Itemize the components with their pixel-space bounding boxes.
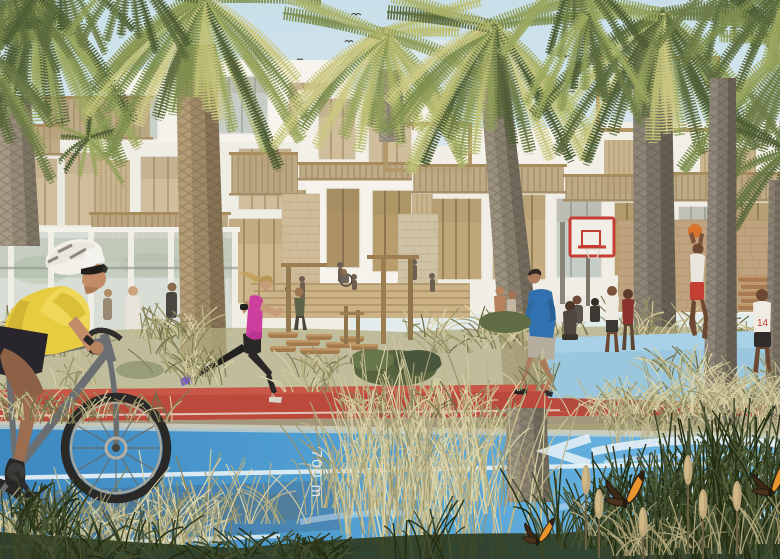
- svg-text:700 m: 700 m: [308, 449, 325, 498]
- svg-text:14: 14: [757, 318, 769, 329]
